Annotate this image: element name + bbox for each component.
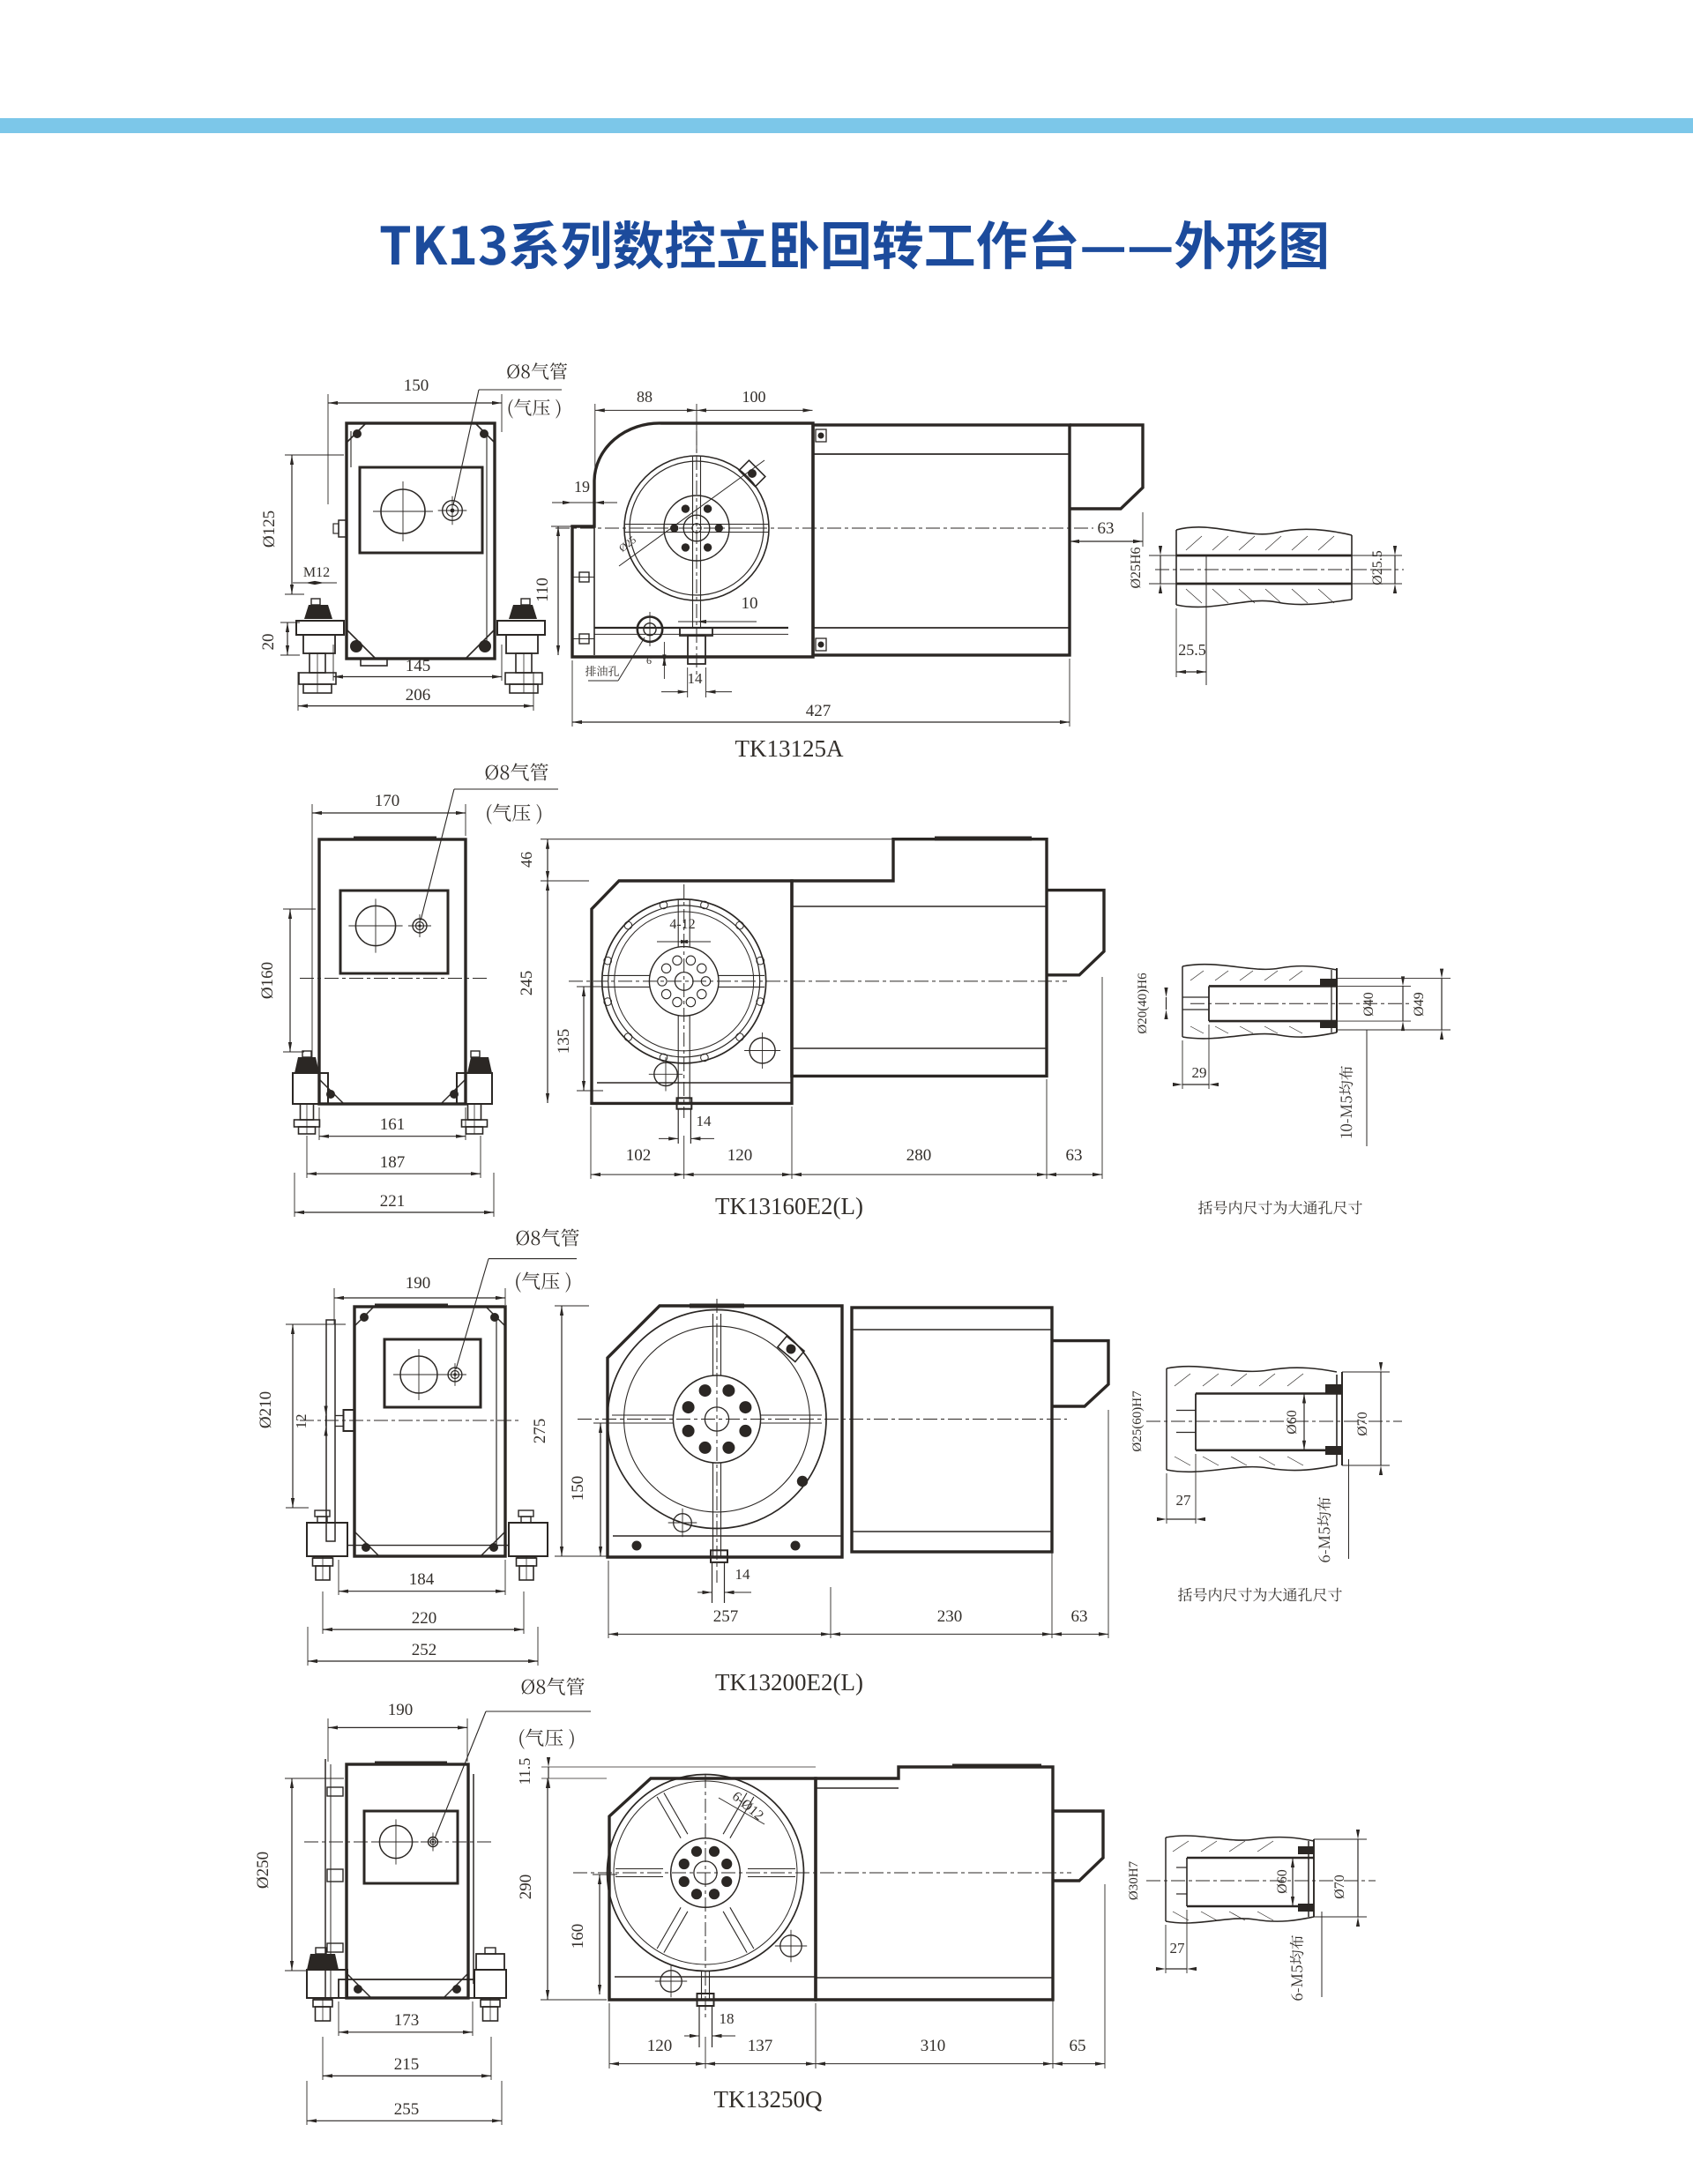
svg-text:187: 187 xyxy=(380,1153,406,1172)
svg-text:Ø160: Ø160 xyxy=(258,962,277,999)
svg-text:10: 10 xyxy=(742,594,758,613)
svg-text:190: 190 xyxy=(406,1274,431,1293)
svg-text:11.5: 11.5 xyxy=(516,1758,533,1785)
svg-text:184: 184 xyxy=(409,1570,435,1589)
svg-text:TK13250Q: TK13250Q xyxy=(714,2086,823,2113)
svg-text:427: 427 xyxy=(806,702,832,720)
svg-text:63: 63 xyxy=(1098,519,1115,538)
svg-text:Ø25H6: Ø25H6 xyxy=(1129,547,1144,588)
svg-text:Ø20(40)H6: Ø20(40)H6 xyxy=(1136,973,1150,1034)
svg-text:173: 173 xyxy=(394,2011,420,2030)
svg-text:Ø210: Ø210 xyxy=(257,1391,275,1428)
svg-text:4-12: 4-12 xyxy=(669,917,695,932)
svg-text:6-Ø12: 6-Ø12 xyxy=(729,1789,766,1823)
svg-text:100: 100 xyxy=(742,388,766,406)
svg-text:27: 27 xyxy=(1170,1940,1186,1957)
svg-text:27: 27 xyxy=(1176,1492,1192,1509)
svg-text:46: 46 xyxy=(518,852,535,868)
svg-text:TK13160E2(L): TK13160E2(L) xyxy=(715,1193,863,1219)
svg-text:275: 275 xyxy=(531,1419,549,1444)
svg-text:170: 170 xyxy=(375,792,400,810)
svg-text:Ø30H7: Ø30H7 xyxy=(1127,1860,1141,1900)
svg-text:206: 206 xyxy=(406,686,431,704)
svg-text:Ø60: Ø60 xyxy=(1285,1410,1300,1435)
svg-text:145: 145 xyxy=(406,657,431,675)
svg-text:Ø70: Ø70 xyxy=(1355,1412,1370,1436)
svg-text:M12: M12 xyxy=(303,565,330,580)
svg-text:14: 14 xyxy=(735,1566,751,1583)
svg-text:150: 150 xyxy=(569,1476,587,1502)
svg-text:Ø49: Ø49 xyxy=(1412,992,1427,1017)
svg-text:137: 137 xyxy=(748,2037,773,2055)
svg-text:220: 220 xyxy=(412,1609,437,1628)
svg-text:63: 63 xyxy=(1071,1607,1088,1626)
svg-text:110: 110 xyxy=(533,578,552,602)
svg-text:290: 290 xyxy=(517,1875,535,1900)
svg-text:63: 63 xyxy=(1066,1146,1083,1165)
svg-text:25.5: 25.5 xyxy=(1178,641,1206,659)
svg-text:215: 215 xyxy=(394,2055,420,2074)
svg-text:150: 150 xyxy=(404,376,429,395)
svg-text:18: 18 xyxy=(720,2010,735,2027)
svg-text:19: 19 xyxy=(574,478,590,496)
svg-text:Ø25(60)H7: Ø25(60)H7 xyxy=(1130,1390,1145,1452)
svg-text:310: 310 xyxy=(921,2037,946,2055)
svg-text:TK13125A: TK13125A xyxy=(735,735,844,762)
svg-text:221: 221 xyxy=(380,1192,406,1211)
svg-text:14: 14 xyxy=(697,1113,712,1129)
svg-text:135: 135 xyxy=(555,1029,573,1055)
svg-text:120: 120 xyxy=(727,1146,753,1165)
svg-text:88: 88 xyxy=(637,388,653,406)
svg-text:102: 102 xyxy=(626,1146,652,1165)
svg-text:Ø60: Ø60 xyxy=(1275,1869,1290,1894)
svg-text:161: 161 xyxy=(380,1115,406,1134)
svg-text:160: 160 xyxy=(569,1924,587,1949)
svg-text:20: 20 xyxy=(259,634,278,651)
svg-text:245: 245 xyxy=(518,971,536,996)
svg-text:Ø70: Ø70 xyxy=(1332,1875,1347,1899)
svg-text:65: 65 xyxy=(1070,2037,1086,2055)
svg-text:280: 280 xyxy=(906,1146,932,1165)
svg-text:190: 190 xyxy=(388,1701,414,1719)
svg-text:6: 6 xyxy=(646,654,652,667)
svg-text:120: 120 xyxy=(647,2037,673,2055)
svg-text:29: 29 xyxy=(1192,1064,1207,1081)
svg-text:14: 14 xyxy=(688,670,704,687)
svg-text:257: 257 xyxy=(713,1607,739,1626)
svg-text:255: 255 xyxy=(394,2100,420,2119)
svg-text:252: 252 xyxy=(412,1641,437,1659)
svg-text:230: 230 xyxy=(937,1607,963,1626)
svg-text:Ø25: Ø25 xyxy=(616,533,638,555)
svg-text:TK13200E2(L): TK13200E2(L) xyxy=(715,1669,863,1696)
svg-text:12: 12 xyxy=(293,1414,310,1429)
svg-text:Ø40: Ø40 xyxy=(1361,992,1376,1017)
svg-text:Ø250: Ø250 xyxy=(254,1852,272,1889)
svg-text:Ø125: Ø125 xyxy=(260,511,279,548)
